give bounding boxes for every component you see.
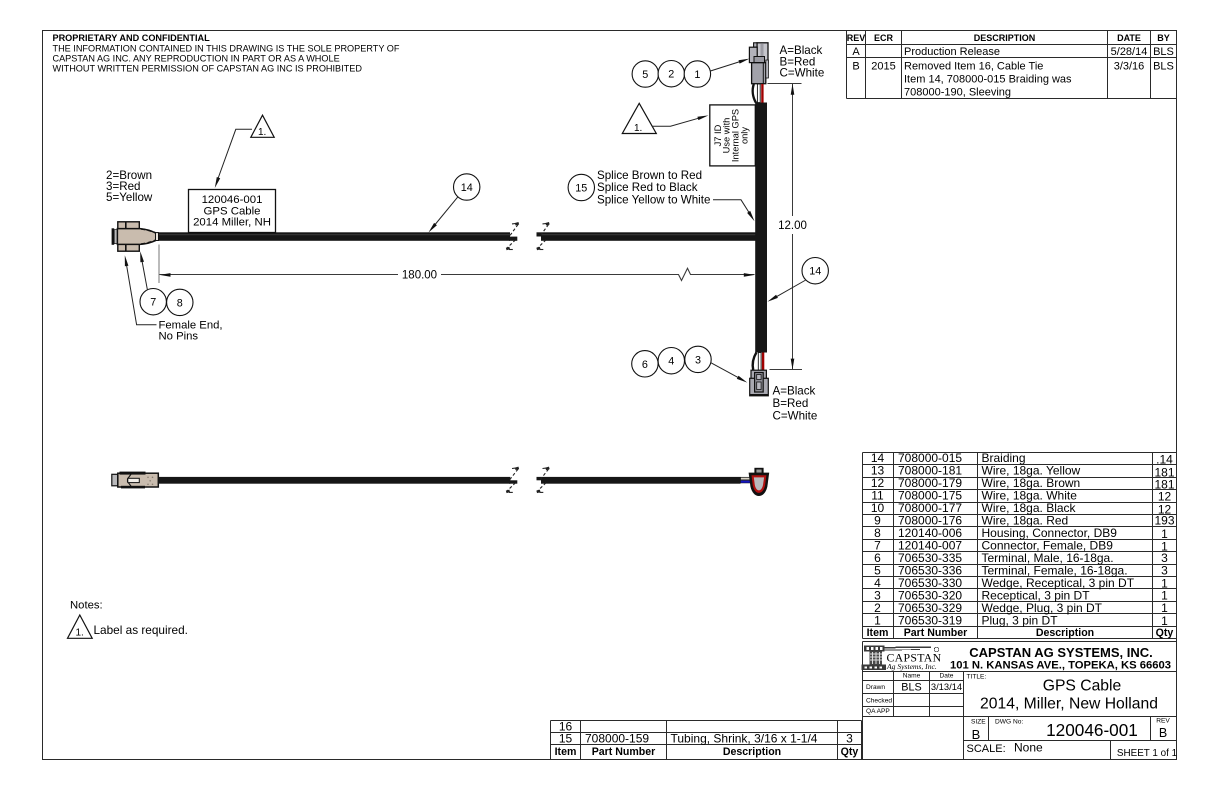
svg-text:Ag Systems, Inc.: Ag Systems, Inc. <box>886 662 937 671</box>
svg-text:Splice Brown to Red: Splice Brown to Red <box>597 169 702 182</box>
svg-text:3: 3 <box>695 354 701 366</box>
svg-text:SIZE: SIZE <box>971 719 986 726</box>
svg-text:Item: Item <box>555 746 577 758</box>
svg-text:BLS: BLS <box>1153 46 1174 58</box>
svg-text:Drawn: Drawn <box>866 684 885 691</box>
svg-text:101 N. KANSAS AVE., TOPEKA, KS: 101 N. KANSAS AVE., TOPEKA, KS 66603 <box>950 660 1171 672</box>
svg-text:A=Black: A=Black <box>773 384 816 397</box>
svg-text:SCALE:: SCALE: <box>967 743 1006 755</box>
svg-text:4: 4 <box>668 356 674 368</box>
svg-text:Item: Item <box>867 627 889 639</box>
svg-text:708000-159: 708000-159 <box>585 732 649 746</box>
svg-text:5=Yellow: 5=Yellow <box>106 191 153 204</box>
svg-text:708000-190, Sleeving: 708000-190, Sleeving <box>904 87 1011 99</box>
svg-text:2014 Miller, NH: 2014 Miller, NH <box>193 217 271 229</box>
svg-text:3: 3 <box>1161 564 1168 578</box>
svg-text:Splice Yellow to White: Splice Yellow to White <box>597 194 710 207</box>
svg-text:14: 14 <box>461 182 473 194</box>
svg-text:B=Red: B=Red <box>773 397 809 410</box>
svg-text:8: 8 <box>177 297 183 309</box>
svg-text:6: 6 <box>642 359 648 371</box>
svg-text:180.00: 180.00 <box>402 270 437 282</box>
svg-text:15: 15 <box>575 183 587 195</box>
svg-text:Part Number: Part Number <box>592 746 656 758</box>
svg-text:WITHOUT WRITTEN PERMISSION OF: WITHOUT WRITTEN PERMISSION OF CAPSTAN AG… <box>53 64 363 74</box>
svg-text:PROPRIETARY AND CONFIDENTIAL: PROPRIETARY AND CONFIDENTIAL <box>53 33 211 43</box>
svg-text:DESCRIPTION: DESCRIPTION <box>974 33 1036 43</box>
svg-text:1: 1 <box>1161 601 1168 615</box>
svg-text:BLS: BLS <box>901 682 921 694</box>
svg-text:Checked: Checked <box>866 698 892 705</box>
svg-text:Splice Red to Black: Splice Red to Black <box>597 181 698 194</box>
svg-text:3/13/14: 3/13/14 <box>931 681 962 692</box>
svg-text:120046-001: 120046-001 <box>202 194 263 206</box>
svg-text:Description: Description <box>723 746 781 758</box>
svg-text:TITLE:: TITLE: <box>967 674 987 681</box>
svg-text:Removed Item 16, Cable Tie: Removed Item 16, Cable Tie <box>904 61 1043 73</box>
svg-text:Description: Description <box>1036 627 1094 639</box>
svg-text:5: 5 <box>642 69 648 81</box>
svg-text:2: 2 <box>668 69 674 81</box>
svg-text:14: 14 <box>809 266 821 278</box>
svg-text:Qty: Qty <box>1156 627 1174 639</box>
svg-text:Qty: Qty <box>841 746 859 758</box>
svg-text:None: None <box>1014 741 1043 755</box>
svg-text:.14: .14 <box>1156 453 1173 467</box>
svg-text:No Pins: No Pins <box>159 331 199 343</box>
svg-text:706530-319: 706530-319 <box>898 614 962 628</box>
svg-text:Part Number: Part Number <box>904 627 968 639</box>
svg-text:THE INFORMATION CONTAINED IN T: THE INFORMATION CONTAINED IN THIS DRAWIN… <box>53 43 400 53</box>
svg-text:12: 12 <box>1158 490 1172 504</box>
svg-text:2015: 2015 <box>871 61 895 73</box>
svg-text:2014, Miller, New Holland: 2014, Miller, New Holland <box>980 696 1158 713</box>
svg-text:B: B <box>1159 726 1167 740</box>
svg-text:3: 3 <box>846 732 853 746</box>
svg-text:5/28/14: 5/28/14 <box>1111 46 1148 58</box>
svg-text:1.: 1. <box>76 628 84 639</box>
svg-text:REV: REV <box>1156 718 1170 725</box>
svg-text:C=White: C=White <box>773 409 818 422</box>
svg-text:15: 15 <box>559 732 573 746</box>
svg-text:120046-001: 120046-001 <box>1046 720 1138 740</box>
svg-text:193: 193 <box>1154 514 1174 528</box>
svg-text:Female End,: Female End, <box>159 319 223 331</box>
svg-text:Item 14, 708000-015 Braiding w: Item 14, 708000-015 Braiding was <box>904 74 1072 86</box>
svg-text:A: A <box>852 46 860 58</box>
svg-text:1.: 1. <box>634 123 642 134</box>
svg-text:Production Release: Production Release <box>904 46 1000 58</box>
svg-text:DATE: DATE <box>1117 33 1141 43</box>
svg-text:BY: BY <box>1157 33 1170 43</box>
svg-text:C=White: C=White <box>780 67 825 80</box>
svg-text:1.: 1. <box>258 127 266 138</box>
svg-text:GPS Cable: GPS Cable <box>1043 678 1122 695</box>
svg-text:1: 1 <box>694 69 700 81</box>
svg-text:Plug, 3 pin DT: Plug, 3 pin DT <box>982 614 1059 628</box>
svg-text:CAPSTAN AG INC. ANY REPRODUCTI: CAPSTAN AG INC. ANY REPRODUCTION IN PART… <box>53 53 340 63</box>
svg-text:Label as required.: Label as required. <box>94 623 188 637</box>
svg-text:SHEET 1 of 1: SHEET 1 of 1 <box>1117 748 1178 759</box>
svg-text:QA APP: QA APP <box>866 708 890 715</box>
svg-text:1: 1 <box>874 614 881 628</box>
svg-text:GPS Cable: GPS Cable <box>204 205 261 217</box>
svg-text:DWG No:: DWG No: <box>995 719 1023 726</box>
svg-text:3/3/16: 3/3/16 <box>1114 61 1145 73</box>
svg-text:Name: Name <box>903 673 921 680</box>
svg-text:Tubing, Shrink, 3/16 x 1-1/4: Tubing, Shrink, 3/16 x 1-1/4 <box>671 732 818 746</box>
svg-text:B: B <box>972 727 981 742</box>
svg-text:CAPSTAN AG SYSTEMS, INC.: CAPSTAN AG SYSTEMS, INC. <box>969 645 1152 660</box>
svg-text:only: only <box>740 127 750 144</box>
svg-text:BLS: BLS <box>1153 61 1174 73</box>
svg-text:REV: REV <box>847 33 866 43</box>
svg-text:7: 7 <box>150 297 156 309</box>
svg-text:12.00: 12.00 <box>778 220 807 232</box>
svg-text:Date: Date <box>940 673 954 680</box>
svg-text:Notes:: Notes: <box>70 600 103 612</box>
svg-text:B: B <box>852 61 859 73</box>
svg-text:ECR: ECR <box>874 33 894 43</box>
svg-text:1: 1 <box>1161 614 1168 628</box>
